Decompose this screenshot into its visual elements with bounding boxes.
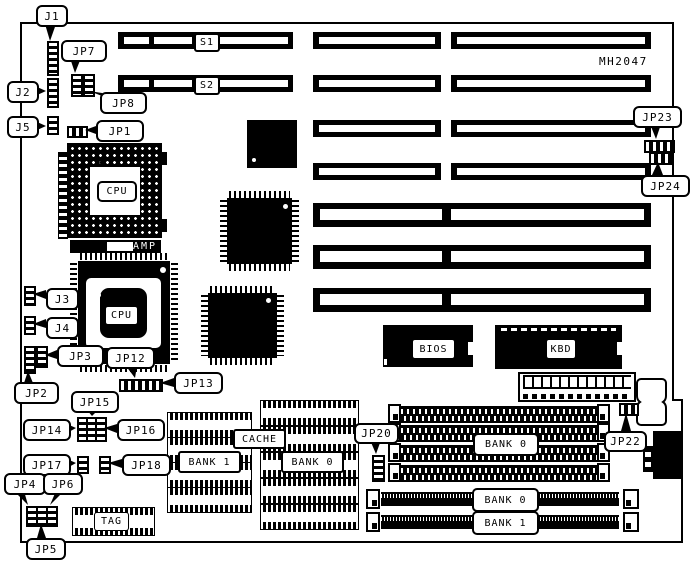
- pin1-dot: [95, 292, 101, 298]
- slot-label-s1: S1: [194, 33, 220, 52]
- cache-label: CACHE: [233, 429, 286, 449]
- simm30-socket: [400, 406, 598, 423]
- amp-label: AMP: [133, 241, 157, 252]
- callout-jp23: JP23: [633, 106, 682, 128]
- isa-slot-s2-mid: [313, 75, 441, 92]
- jumper-jp8: [83, 74, 95, 97]
- socket-clip: [161, 219, 167, 232]
- jumper-jp24: [649, 152, 673, 165]
- edge-connector: [58, 152, 68, 239]
- isa-slot-s1-right: [451, 32, 651, 49]
- chipset-chip: [220, 191, 299, 271]
- isa-slot-3-right: [451, 120, 651, 137]
- jumper-jp2: [24, 346, 36, 374]
- motherboard-diagram: AMP: [0, 0, 690, 563]
- callout-jp14: JP14: [23, 419, 71, 441]
- jumper-jp17: [77, 456, 89, 474]
- pin1-dot: [283, 204, 288, 209]
- callout-jp12: JP12: [106, 347, 155, 369]
- callout-jp15: JP15: [71, 391, 119, 413]
- kbd-label: KBD: [546, 339, 576, 359]
- cpu-socket-label: CPU: [97, 181, 137, 202]
- cache-dip-socket: [260, 478, 359, 504]
- simm72-bank0-label: BANK 0: [472, 488, 539, 512]
- simm72-bank1-label: BANK 1: [472, 511, 539, 535]
- isa-slot-4-mid: [313, 163, 441, 180]
- jumper-j1: [47, 41, 59, 76]
- jumper-jp20: [372, 455, 385, 482]
- pin1-dot: [266, 298, 271, 303]
- pin1-marker: [99, 159, 106, 166]
- callout-jp5: JP5: [26, 538, 66, 560]
- kbd-dashed-line: [501, 328, 616, 331]
- pin1-dot: [160, 267, 166, 273]
- callout-j2: J2: [7, 81, 39, 103]
- callout-jp13: JP13: [174, 372, 223, 394]
- callout-j4: J4: [46, 317, 79, 339]
- jumper-jp16: [95, 417, 107, 442]
- callout-jp16: JP16: [117, 419, 165, 441]
- callout-jp1: JP1: [96, 120, 144, 142]
- bios-label: BIOS: [412, 339, 455, 359]
- cache-dip-socket: [167, 487, 252, 513]
- simm30-socket: [400, 465, 598, 482]
- callout-jp22: JP22: [604, 431, 647, 452]
- board-id-text: MH2047: [599, 55, 648, 68]
- callout-jp20: JP20: [354, 423, 399, 444]
- pin-header-connector: [518, 372, 636, 402]
- callout-j5: J5: [7, 116, 39, 138]
- cache-bank0-label: BANK 0: [281, 451, 344, 473]
- isa-slot-6: [313, 245, 651, 269]
- jumper-j3: [24, 286, 36, 306]
- callout-jp7: JP7: [61, 40, 107, 62]
- isa-slot-7: [313, 288, 651, 312]
- callout-j3: J3: [46, 288, 79, 310]
- cache-bank1-label: BANK 1: [178, 451, 241, 473]
- isa-slot-s1-mid: [313, 32, 441, 49]
- jumper-jp1: [67, 126, 88, 138]
- callout-jp24: JP24: [641, 175, 690, 197]
- cache-dip-socket: [260, 504, 359, 530]
- jumper-j4: [24, 316, 36, 335]
- keyboard-din-connector: [653, 431, 682, 479]
- callout-jp18: JP18: [122, 454, 171, 476]
- slot-label-s2: S2: [194, 76, 220, 95]
- callout-jp4: JP4: [4, 473, 46, 495]
- callout-jp3: JP3: [57, 345, 104, 367]
- callout-jp6: JP6: [43, 473, 83, 495]
- jumper-jp22: [619, 403, 639, 416]
- isa-slot-3-mid: [313, 120, 441, 137]
- callout-j1: J1: [36, 5, 68, 27]
- socket-clip: [161, 152, 167, 165]
- simm30-bank0-label: BANK 0: [473, 433, 539, 456]
- cpu-chip-label: CPU: [105, 306, 138, 325]
- isa-slot-4-right: [451, 163, 651, 180]
- jumper-jp7: [71, 74, 83, 97]
- isa-slot-5: [313, 203, 651, 227]
- speaker-outline: [637, 379, 666, 425]
- chipset-chip: [201, 286, 284, 365]
- cache-dip-socket: [260, 400, 359, 426]
- jumper-jp12-jp13: [119, 379, 163, 392]
- jumper-jp3: [36, 346, 48, 368]
- callout-jp8: JP8: [100, 92, 147, 114]
- jumper-jp6: [46, 506, 58, 527]
- jumper-jp18: [99, 456, 111, 474]
- pin1-dot: [252, 158, 256, 162]
- tag-label: TAG: [94, 512, 129, 531]
- jumper-j5: [47, 116, 59, 135]
- callout-jp2: JP2: [14, 382, 59, 404]
- jumper-j2: [47, 78, 59, 108]
- isa-slot-s2-right: [451, 75, 651, 92]
